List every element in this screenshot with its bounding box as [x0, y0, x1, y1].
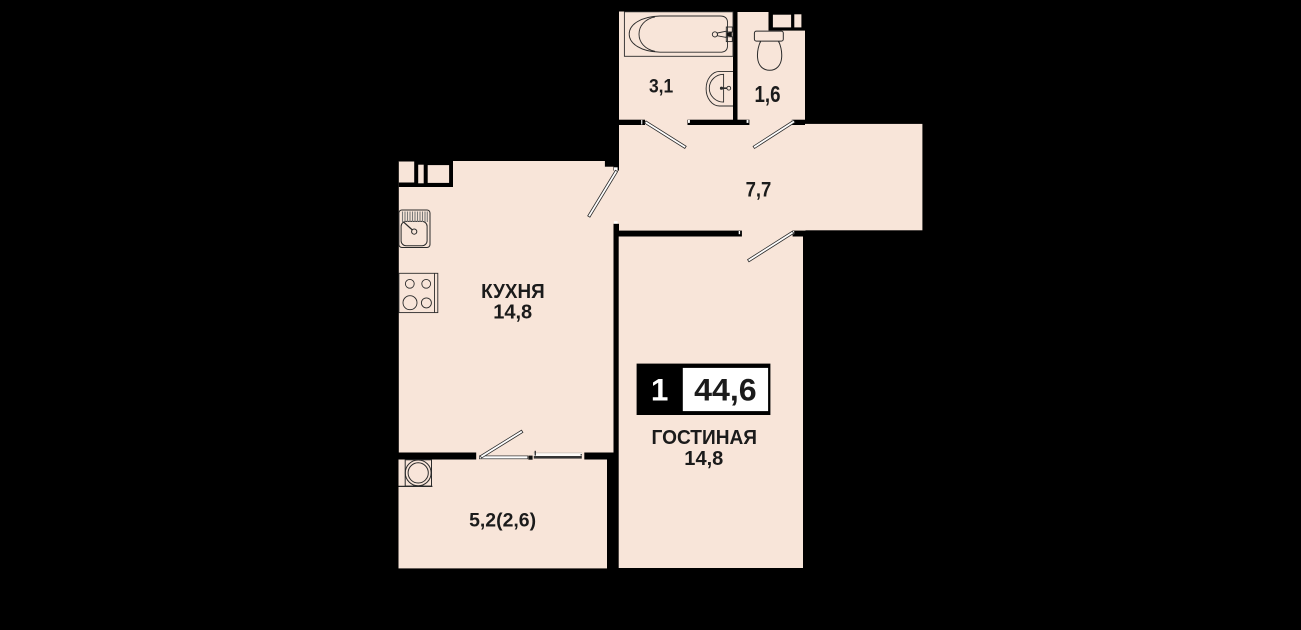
svg-text:44,6: 44,6 — [694, 372, 757, 408]
svg-text:ГОСТИНАЯ: ГОСТИНАЯ — [652, 426, 758, 449]
svg-text:1: 1 — [651, 372, 669, 408]
svg-text:7,7: 7,7 — [746, 178, 772, 202]
svg-text:3,1: 3,1 — [649, 75, 673, 97]
svg-text:5,2(2,6): 5,2(2,6) — [469, 509, 536, 531]
svg-text:1,6: 1,6 — [755, 81, 781, 107]
svg-text:14,8: 14,8 — [684, 447, 723, 470]
svg-text:14,8: 14,8 — [493, 300, 532, 323]
